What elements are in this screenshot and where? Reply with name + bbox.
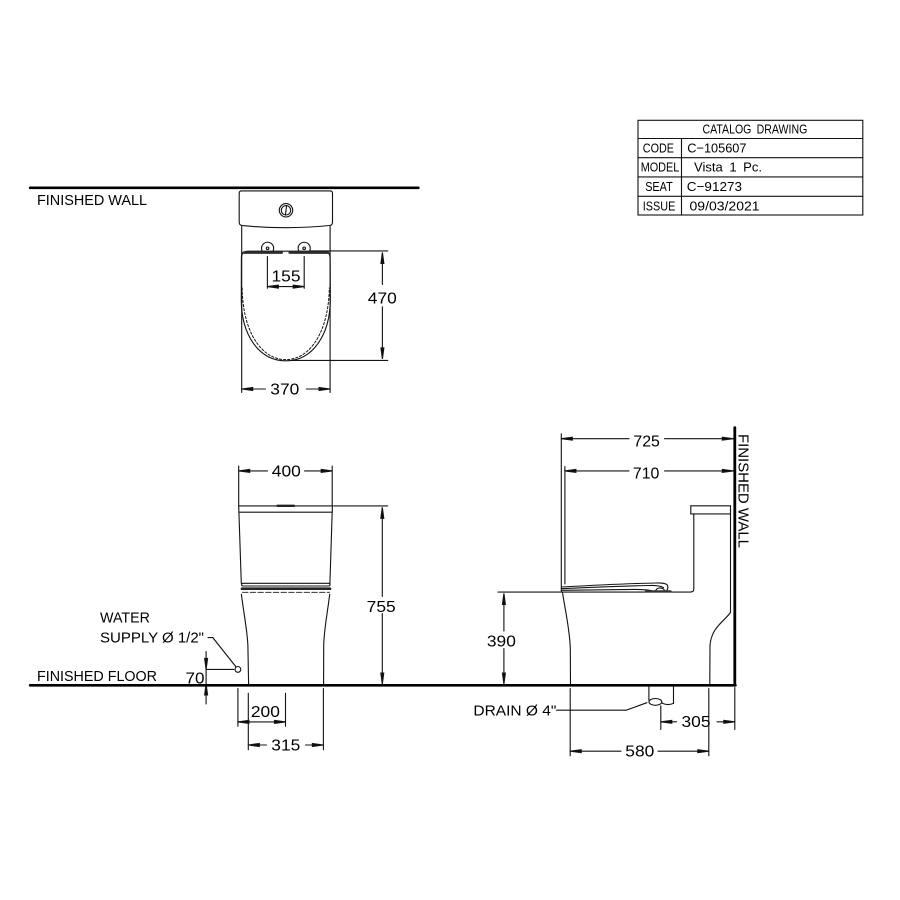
svg-text:09/03/2021: 09/03/2021 [690, 199, 760, 214]
svg-text:710: 710 [633, 466, 660, 483]
svg-text:155: 155 [272, 268, 301, 285]
svg-text:DRAIN Ø 4": DRAIN Ø 4" [473, 703, 556, 720]
svg-text:370: 370 [270, 382, 299, 399]
svg-text:390: 390 [487, 634, 516, 651]
svg-text:305: 305 [682, 714, 711, 731]
svg-text:200: 200 [251, 704, 280, 721]
svg-text:CODE: CODE [643, 140, 674, 155]
svg-text:SUPPLY Ø 1/2": SUPPLY Ø 1/2" [100, 629, 204, 646]
svg-text:C−105607: C−105607 [687, 140, 746, 155]
svg-text:FINISHED WALL: FINISHED WALL [37, 192, 147, 209]
svg-text:315: 315 [271, 737, 300, 754]
svg-text:FINISHED WALL: FINISHED WALL [735, 434, 752, 548]
svg-text:C−91273: C−91273 [687, 179, 742, 194]
svg-text:WATER: WATER [100, 609, 150, 626]
svg-text:SEAT: SEAT [645, 179, 673, 194]
svg-text:580: 580 [625, 744, 654, 761]
svg-text:MODEL: MODEL [641, 160, 680, 175]
svg-text:725: 725 [633, 433, 660, 450]
svg-text:Vista 1 Pc.: Vista 1 Pc. [694, 160, 762, 175]
svg-text:CATALOG DRAWING: CATALOG DRAWING [703, 122, 808, 137]
svg-text:755: 755 [367, 599, 396, 616]
svg-text:ISSUE: ISSUE [643, 199, 676, 214]
svg-text:470: 470 [368, 290, 397, 307]
svg-text:400: 400 [272, 463, 301, 480]
svg-text:FINISHED FLOOR: FINISHED FLOOR [37, 668, 157, 685]
